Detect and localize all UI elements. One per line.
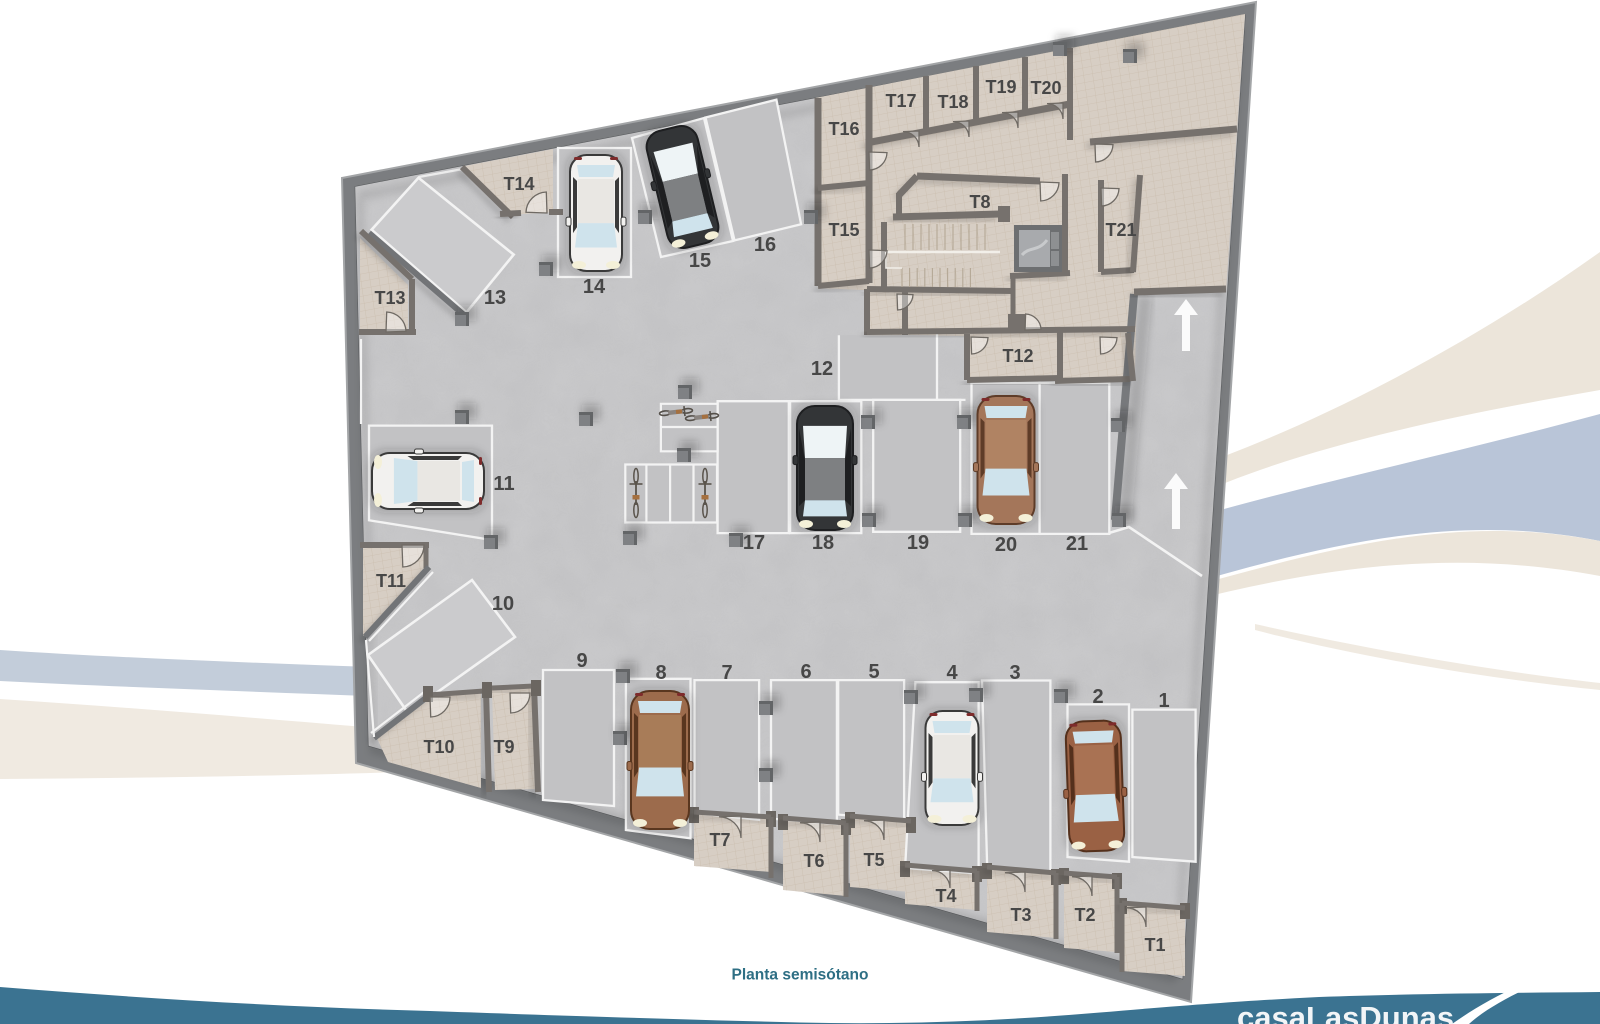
svg-text:T19: T19 — [985, 77, 1016, 97]
svg-text:T5: T5 — [863, 850, 884, 870]
svg-text:7: 7 — [721, 662, 732, 684]
svg-text:casaLasDunas: casaLasDunas — [1237, 1000, 1454, 1024]
svg-text:18: 18 — [812, 532, 834, 554]
svg-text:Planta semisótano: Planta semisótano — [732, 967, 869, 984]
svg-text:10: 10 — [492, 593, 514, 615]
svg-text:T18: T18 — [937, 92, 968, 112]
svg-text:11: 11 — [493, 473, 514, 495]
svg-text:6: 6 — [800, 661, 811, 683]
svg-text:T2: T2 — [1074, 905, 1095, 925]
svg-text:T3: T3 — [1010, 905, 1031, 925]
svg-text:2: 2 — [1092, 686, 1103, 708]
svg-text:T17: T17 — [885, 91, 916, 111]
svg-text:T7: T7 — [709, 830, 730, 850]
svg-text:T21: T21 — [1105, 220, 1136, 240]
svg-text:1: 1 — [1158, 690, 1169, 712]
svg-text:16: 16 — [754, 234, 776, 256]
svg-text:T1: T1 — [1144, 935, 1165, 955]
svg-text:T10: T10 — [423, 737, 454, 757]
svg-text:8: 8 — [655, 662, 666, 684]
svg-text:T4: T4 — [935, 886, 956, 906]
svg-text:T14: T14 — [503, 174, 534, 194]
svg-text:19: 19 — [907, 532, 929, 554]
svg-text:T12: T12 — [1002, 346, 1033, 366]
svg-text:17: 17 — [743, 532, 765, 554]
svg-text:14: 14 — [583, 276, 606, 298]
svg-text:15: 15 — [689, 250, 711, 272]
svg-text:5: 5 — [868, 661, 879, 683]
svg-text:13: 13 — [484, 287, 506, 309]
svg-text:T9: T9 — [493, 737, 514, 757]
svg-text:3: 3 — [1009, 662, 1020, 684]
svg-text:T8: T8 — [969, 192, 990, 212]
svg-text:9: 9 — [576, 650, 587, 672]
svg-text:T11: T11 — [376, 571, 406, 591]
svg-text:T15: T15 — [828, 220, 859, 240]
svg-text:4: 4 — [946, 662, 958, 684]
svg-text:T20: T20 — [1030, 78, 1061, 98]
svg-text:12: 12 — [811, 358, 833, 380]
svg-text:T13: T13 — [374, 288, 405, 308]
svg-text:21: 21 — [1066, 533, 1088, 555]
svg-text:20: 20 — [995, 534, 1017, 556]
svg-text:T16: T16 — [828, 119, 859, 139]
svg-text:T6: T6 — [803, 851, 824, 871]
